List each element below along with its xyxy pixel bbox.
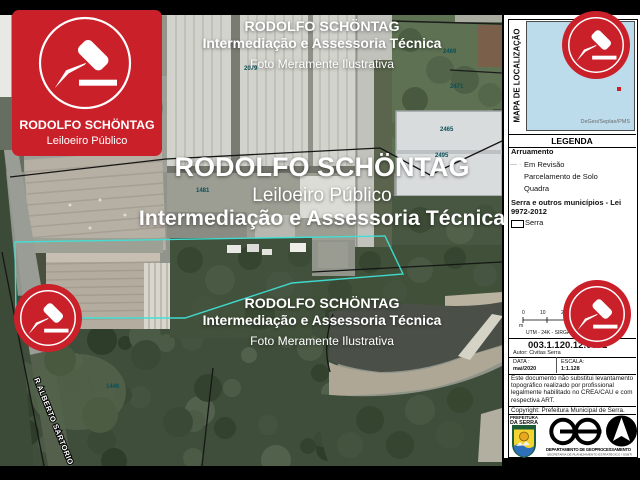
svg-text:2471: 2471 (450, 84, 464, 90)
svg-text:2465: 2465 (440, 127, 454, 133)
svg-text:1446: 1446 (106, 384, 120, 390)
svg-text:Leiloeiro Público: Leiloeiro Público (47, 135, 128, 147)
svg-text:RODOLFO SCHÖNTAG: RODOLFO SCHÖNTAG (19, 117, 154, 132)
svg-text:DEPARTAMENTO DE GEOPROCESSAMEN: DEPARTAMENTO DE GEOPROCESSAMENTO (546, 447, 632, 452)
svg-text:SECRETARIA DE PLANEJAMENTO EST: SECRETARIA DE PLANEJAMENTO ESTRATÉGICO /… (547, 452, 632, 457)
